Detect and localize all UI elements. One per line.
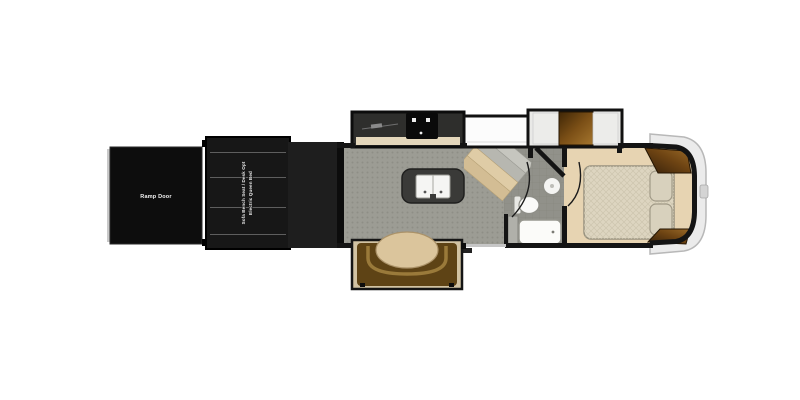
refrigerator [464,116,530,147]
range-cooktop [406,113,438,139]
kitchen-island [402,169,464,203]
garage-slideout: Sofa Bench Seat / Desk Opt Electric Quee… [202,137,290,249]
garage-floor [288,142,337,248]
bed [584,166,674,239]
wardrobe-slide [559,112,593,145]
tub-drain [552,231,555,234]
hitch-notch [700,185,708,198]
closet-left [533,113,559,144]
floorplan-canvas: Ramp Door Sofa Bench Seat / Desk Opt Ele… [0,0,800,400]
ramp-door-label: Ramp Door [140,194,172,200]
island-sink-faucet [430,194,436,199]
bedroom-slideout [528,110,622,147]
bath-bedroom-wall-lower [562,206,567,244]
pillow [650,171,672,201]
floorplan-svg: Ramp Door Sofa Bench Seat / Desk Opt Ele… [0,0,800,400]
garage-wall-divider [337,142,344,248]
bath-left-wall [504,214,508,244]
garage-bed-label-line2: Sofa Bench Seat / Desk Opt [241,161,246,224]
entry-door-threshold [466,244,506,247]
dinette-table [376,232,438,268]
island-sink [416,175,450,199]
bath-bedroom-wall-upper [562,147,567,167]
closet-right [593,113,618,144]
bathtub [519,220,561,244]
dinette-slideout [352,232,466,289]
garage-bed-label-line1: Electric Queen Bed [248,171,253,215]
ramp-door: Ramp Door [107,147,202,244]
shower-cabinet [508,216,518,245]
kitchen-slideout [352,112,464,147]
